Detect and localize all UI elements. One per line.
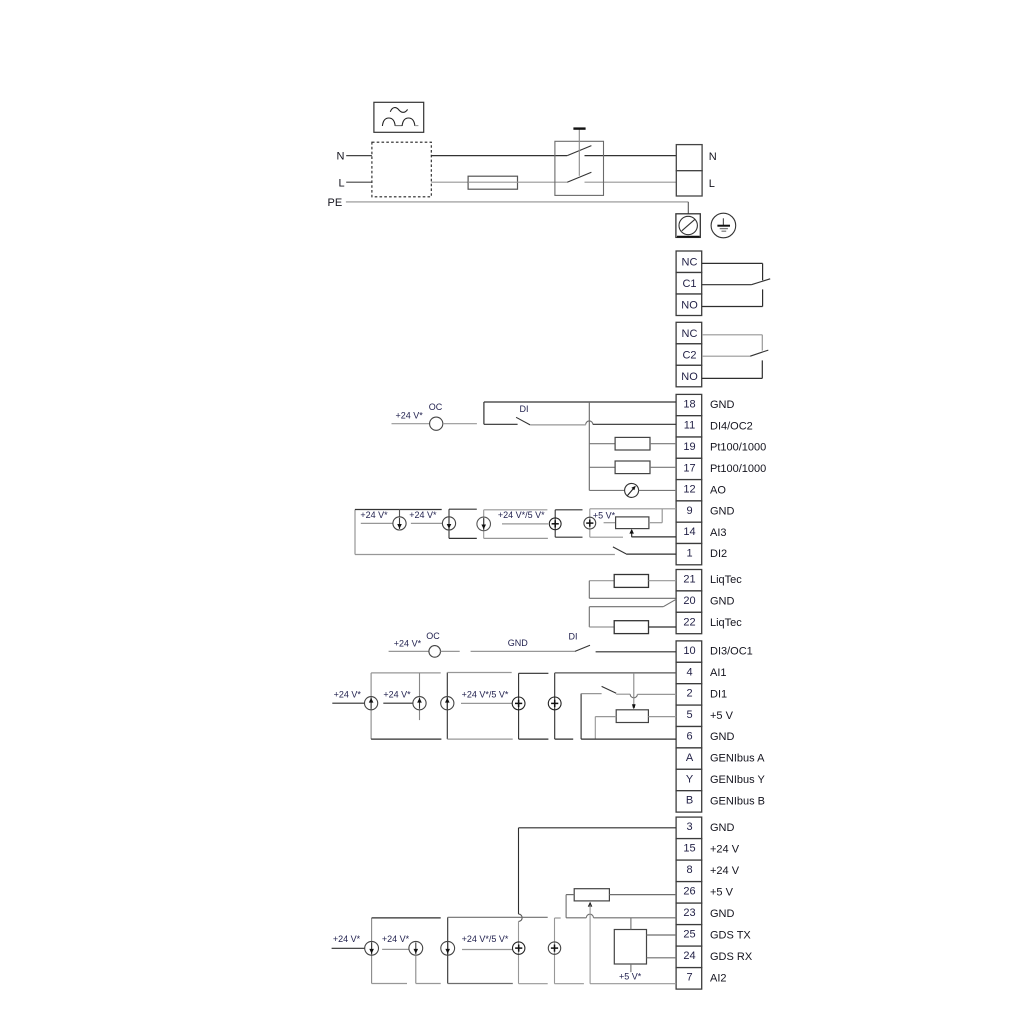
- svg-text:+5 V: +5 V: [710, 886, 734, 898]
- svg-text:+24 V*: +24 V*: [383, 689, 411, 699]
- svg-text:+24 V*: +24 V*: [334, 689, 362, 699]
- svg-text:9: 9: [686, 505, 692, 517]
- svg-text:GND: GND: [710, 506, 735, 518]
- svg-text:+24 V*/5 V*: +24 V*/5 V*: [462, 934, 509, 944]
- svg-text:NO: NO: [681, 300, 698, 312]
- svg-text:8: 8: [686, 864, 692, 876]
- svg-text:NC: NC: [682, 257, 698, 269]
- svg-text:10: 10: [683, 645, 695, 657]
- svg-text:L: L: [709, 178, 715, 190]
- svg-text:20: 20: [683, 595, 695, 607]
- svg-text:AO: AO: [710, 484, 726, 496]
- svg-text:OC: OC: [429, 402, 443, 412]
- svg-text:18: 18: [683, 398, 695, 410]
- svg-text:25: 25: [683, 929, 695, 941]
- svg-text:+24 V*: +24 V*: [360, 510, 388, 520]
- svg-text:GENIbus A: GENIbus A: [710, 753, 765, 765]
- svg-text:+24 V*: +24 V*: [396, 411, 424, 421]
- svg-text:B: B: [686, 795, 693, 807]
- svg-text:N: N: [709, 151, 717, 163]
- svg-text:GND: GND: [710, 731, 735, 743]
- svg-text:DI: DI: [520, 404, 529, 414]
- svg-text:24: 24: [683, 950, 695, 962]
- svg-text:GND: GND: [710, 822, 735, 834]
- svg-text:C2: C2: [682, 349, 696, 361]
- svg-text:+24 V: +24 V: [710, 865, 740, 877]
- svg-text:4: 4: [686, 666, 692, 678]
- svg-text:AI1: AI1: [710, 667, 727, 679]
- svg-text:A: A: [686, 752, 694, 764]
- svg-text:23: 23: [683, 907, 695, 919]
- svg-text:Y: Y: [686, 773, 694, 785]
- svg-text:DI3/OC1: DI3/OC1: [710, 646, 753, 658]
- svg-text:PE: PE: [328, 197, 343, 209]
- svg-text:+24 V*: +24 V*: [409, 510, 437, 520]
- svg-text:AI2: AI2: [710, 972, 727, 984]
- svg-text:Pt100/1000: Pt100/1000: [710, 442, 766, 454]
- svg-text:DI: DI: [569, 632, 578, 642]
- svg-text:L: L: [339, 177, 345, 189]
- svg-text:OC: OC: [426, 631, 440, 641]
- svg-text:15: 15: [683, 843, 695, 855]
- svg-text:21: 21: [683, 574, 695, 586]
- svg-text:+24 V*: +24 V*: [394, 639, 422, 649]
- svg-text:14: 14: [683, 526, 695, 538]
- svg-text:NC: NC: [682, 328, 698, 340]
- svg-text:DI1: DI1: [710, 688, 727, 700]
- svg-text:GENIbus Y: GENIbus Y: [710, 774, 765, 786]
- svg-text:+24 V*: +24 V*: [382, 934, 410, 944]
- svg-text:+5 V: +5 V: [710, 710, 734, 722]
- svg-text:11: 11: [684, 420, 695, 432]
- svg-text:DI2: DI2: [710, 548, 727, 560]
- svg-text:DI4/OC2: DI4/OC2: [710, 420, 753, 432]
- svg-text:N: N: [337, 151, 345, 163]
- svg-text:+24 V*/5 V*: +24 V*/5 V*: [498, 510, 545, 520]
- svg-text:NO: NO: [681, 371, 698, 383]
- svg-text:2: 2: [686, 688, 692, 700]
- svg-text:+5 V*: +5 V*: [593, 510, 616, 520]
- svg-text:12: 12: [683, 484, 695, 496]
- svg-text:GND: GND: [710, 596, 735, 608]
- svg-text:+24 V: +24 V: [710, 843, 740, 855]
- svg-text:26: 26: [683, 886, 695, 898]
- svg-text:19: 19: [683, 441, 695, 453]
- svg-text:GND: GND: [710, 399, 735, 411]
- svg-text:1: 1: [686, 547, 692, 559]
- svg-text:+24 V*: +24 V*: [333, 934, 361, 944]
- svg-text:+24 V*/5 V*: +24 V*/5 V*: [462, 689, 509, 699]
- svg-text:LiqTec: LiqTec: [710, 617, 742, 629]
- svg-text:LiqTec: LiqTec: [710, 574, 742, 586]
- svg-text:GND: GND: [508, 638, 529, 648]
- svg-text:3: 3: [686, 821, 692, 833]
- svg-text:7: 7: [686, 972, 692, 984]
- svg-text:AI3: AI3: [710, 527, 727, 539]
- svg-text:17: 17: [683, 462, 695, 474]
- svg-text:GDS TX: GDS TX: [710, 929, 751, 941]
- svg-text:+5 V*: +5 V*: [619, 972, 642, 982]
- svg-text:GENIbus B: GENIbus B: [710, 795, 765, 807]
- svg-text:5: 5: [686, 709, 692, 721]
- svg-text:GND: GND: [710, 908, 735, 920]
- svg-text:Pt100/1000: Pt100/1000: [710, 463, 766, 475]
- svg-text:GDS RX: GDS RX: [710, 951, 753, 963]
- svg-text:C1: C1: [682, 278, 696, 290]
- svg-text:6: 6: [686, 731, 692, 743]
- svg-text:22: 22: [683, 616, 695, 628]
